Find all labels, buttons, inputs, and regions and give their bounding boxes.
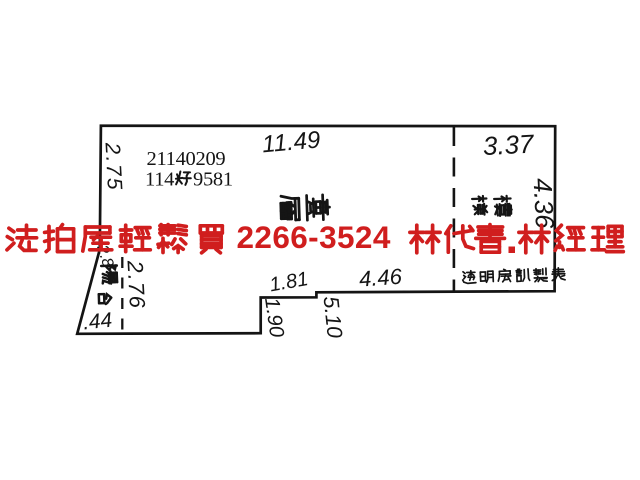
svg-text:2.75: 2.75 <box>100 141 126 192</box>
svg-text:4.36: 4.36 <box>528 177 561 230</box>
svg-text:9581: 9581 <box>193 169 233 191</box>
svg-text:114: 114 <box>145 169 174 191</box>
svg-text:2.76: 2.76 <box>122 259 150 310</box>
svg-text:21140209: 21140209 <box>147 148 226 170</box>
svg-text:3.37: 3.37 <box>482 128 536 161</box>
svg-text:5.10: 5.10 <box>319 295 347 339</box>
svg-text:.44: .44 <box>82 309 113 335</box>
svg-text:2266-3524: 2266-3524 <box>237 219 391 255</box>
svg-text:4.46: 4.46 <box>358 264 403 292</box>
svg-text:11.49: 11.49 <box>261 126 321 158</box>
